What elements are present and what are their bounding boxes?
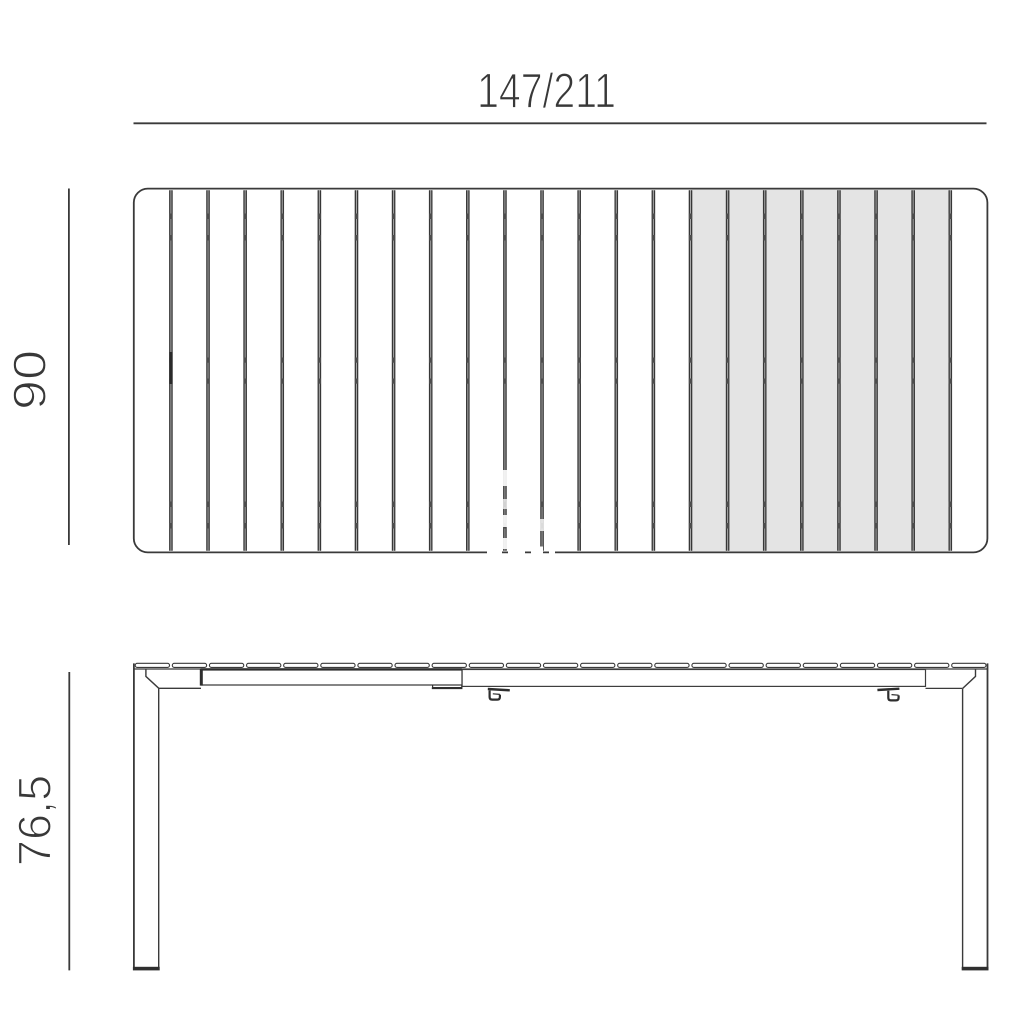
svg-text:147/211: 147/211 [477,64,616,118]
svg-text:90: 90 [3,350,55,410]
svg-text:76,5: 76,5 [9,775,60,866]
